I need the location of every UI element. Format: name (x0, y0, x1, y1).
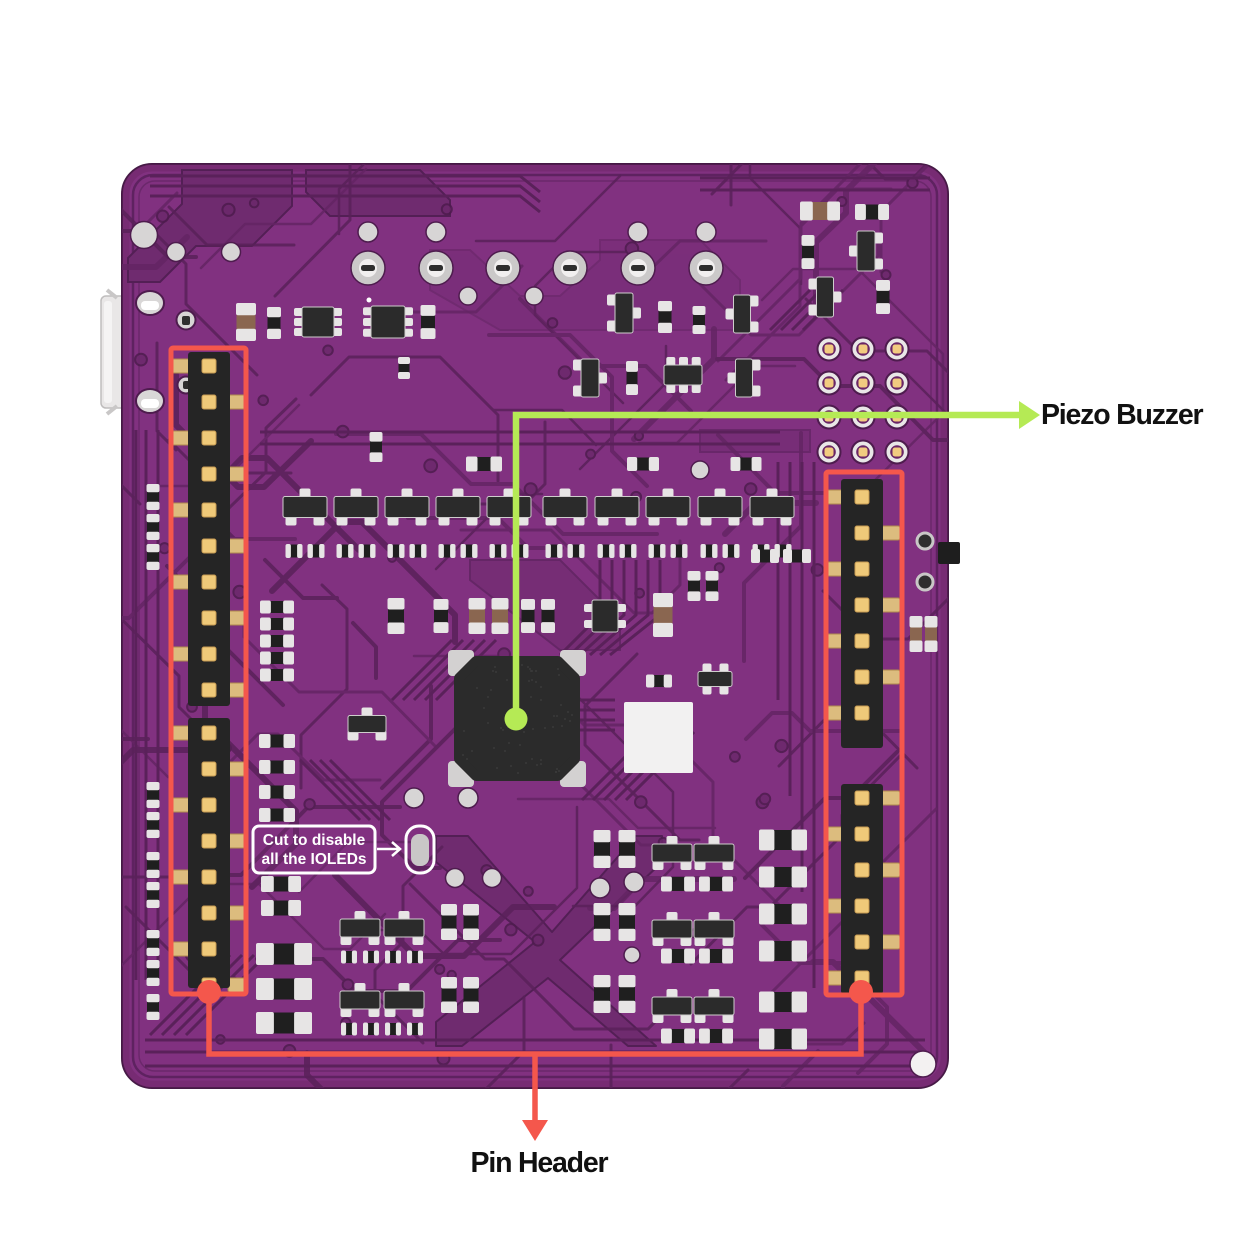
svg-text:Cut to disable: Cut to disable (263, 832, 366, 849)
svg-text:all the IOLEDs: all the IOLEDs (261, 851, 366, 868)
svg-text:Pin Header: Pin Header (471, 1147, 609, 1179)
svg-text:Piezo Buzzer: Piezo Buzzer (1041, 399, 1203, 431)
